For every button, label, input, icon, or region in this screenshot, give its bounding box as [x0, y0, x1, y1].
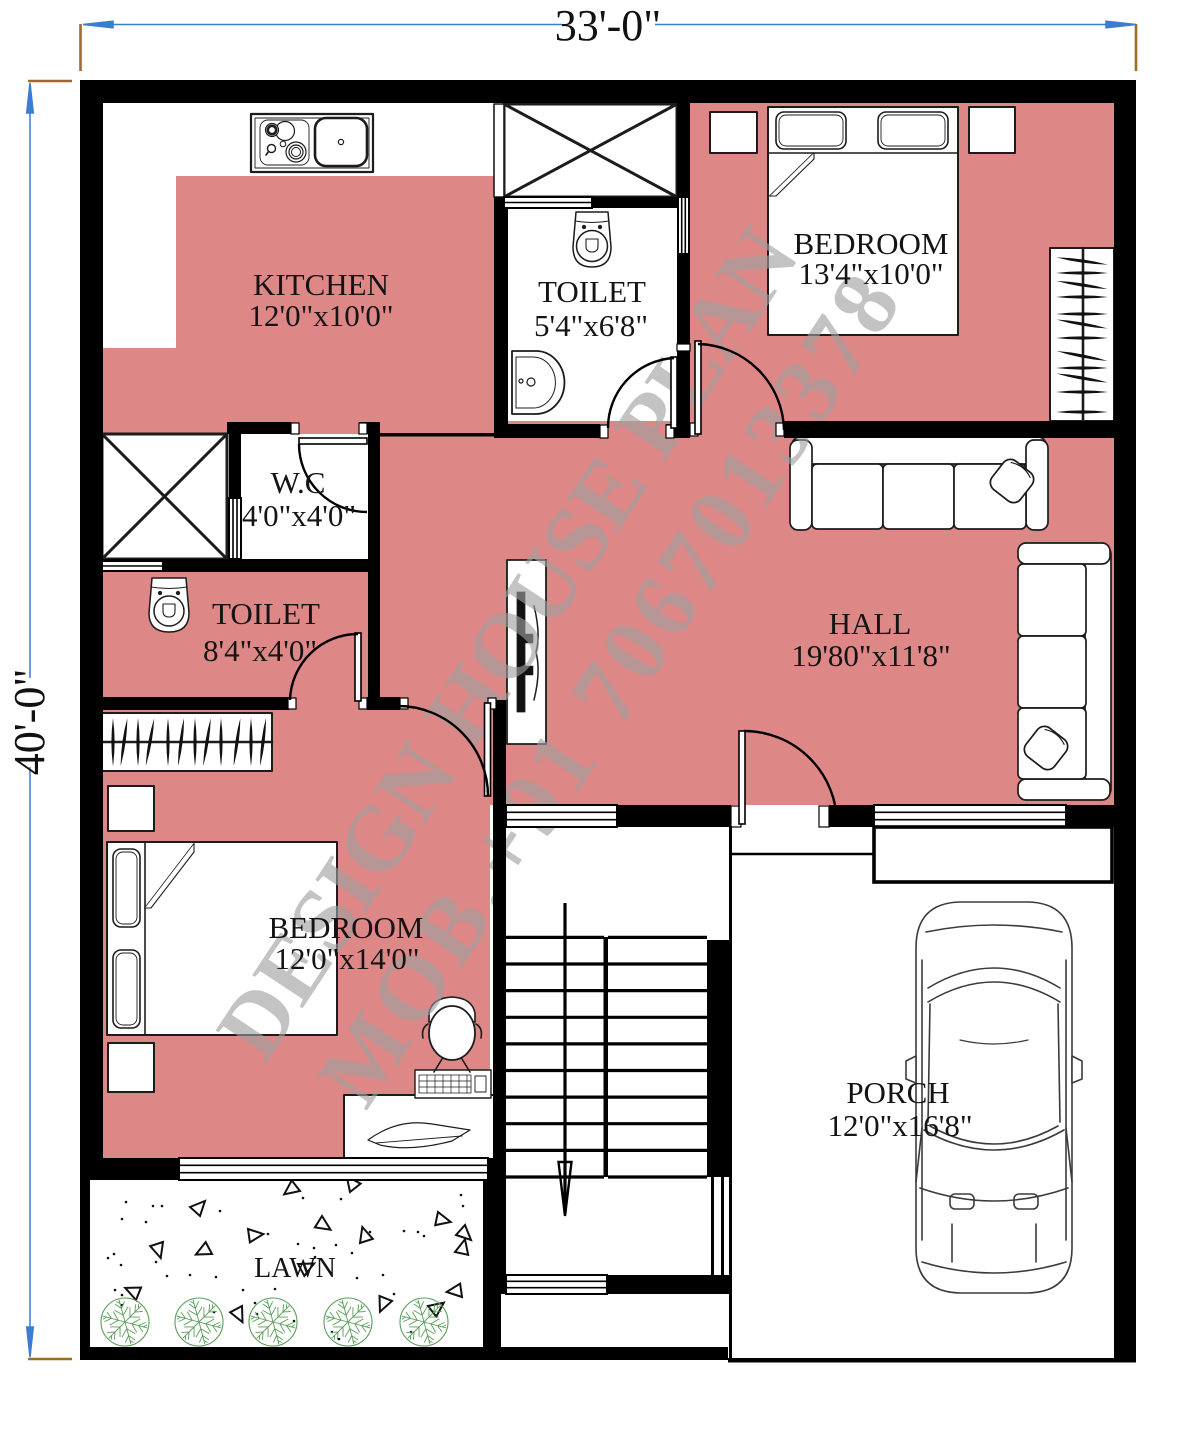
svg-text:33'-0": 33'-0" — [555, 1, 662, 50]
svg-text:4'0"x4'0": 4'0"x4'0" — [242, 498, 356, 533]
svg-text:40'-0": 40'-0" — [5, 669, 54, 776]
svg-text:12'0"x14'0": 12'0"x14'0" — [275, 941, 420, 976]
svg-text:5'4"x6'8": 5'4"x6'8" — [534, 308, 648, 343]
svg-text:TOILET: TOILET — [538, 274, 646, 309]
svg-text:12'0"x10'0": 12'0"x10'0" — [249, 298, 394, 333]
svg-text:KITCHEN: KITCHEN — [253, 267, 389, 302]
svg-text:PORCH: PORCH — [846, 1075, 949, 1110]
svg-text:BEDROOM: BEDROOM — [268, 910, 423, 945]
svg-text:19'80"x11'8": 19'80"x11'8" — [791, 638, 950, 673]
svg-text:12'0"x16'8": 12'0"x16'8" — [828, 1108, 973, 1143]
svg-text:W.C: W.C — [271, 465, 326, 500]
svg-text:8'4"x4'0": 8'4"x4'0" — [203, 633, 317, 668]
svg-text:LAWN: LAWN — [254, 1253, 336, 1284]
svg-text:HALL: HALL — [829, 606, 912, 641]
svg-text:13'4"x10'0": 13'4"x10'0" — [799, 256, 944, 291]
svg-text:TOILET: TOILET — [212, 596, 320, 631]
